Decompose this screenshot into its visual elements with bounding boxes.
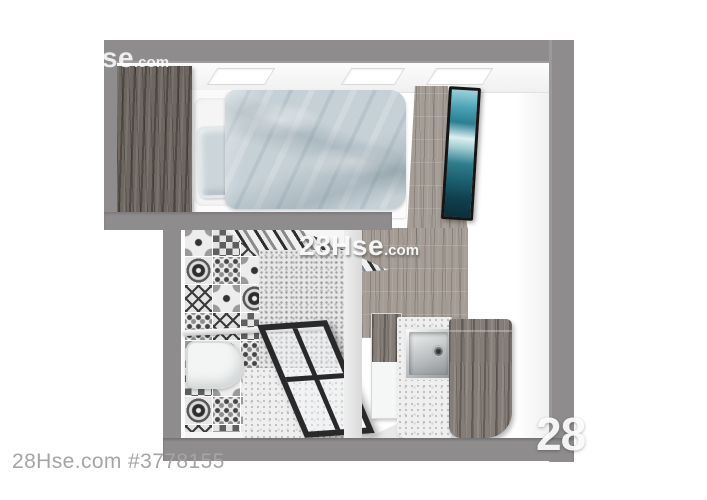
watermark-bottom-right: 28 xyxy=(536,411,585,457)
ceiling-recessed-panel xyxy=(207,68,276,85)
wall-right xyxy=(549,40,574,462)
wall-top xyxy=(104,40,574,63)
ceiling-recessed-panel xyxy=(341,68,406,85)
wall-bed-bath-divider xyxy=(104,212,392,230)
tile xyxy=(213,425,240,432)
tile xyxy=(185,229,212,256)
right-wall-shading xyxy=(516,63,549,438)
wall-bathroom-left xyxy=(163,230,181,438)
tile xyxy=(185,285,212,312)
watermark-top-left: 28Hse.com xyxy=(49,44,169,72)
tile xyxy=(213,285,240,312)
tile xyxy=(185,313,212,340)
sink-drain xyxy=(432,345,445,358)
tile xyxy=(185,425,212,432)
kitchen-wood-cabinet xyxy=(449,319,512,438)
listing-caption: 28Hse.com #3778155 xyxy=(12,450,225,474)
tile xyxy=(213,257,240,284)
ceiling-recessed-panel xyxy=(426,68,494,85)
bed-duvet xyxy=(225,90,406,209)
wardrobe-cabinet xyxy=(112,66,192,213)
watermark-center: 28Hse.com xyxy=(299,232,419,260)
watermark-brand: 28Hse xyxy=(49,42,134,73)
tile xyxy=(185,397,212,424)
floorplan-page: { "caption": { "text": "28Hse.com #37781… xyxy=(0,0,707,500)
tile xyxy=(185,257,212,284)
tile xyxy=(213,313,240,340)
tile xyxy=(213,397,240,424)
watermark-suffix: .com xyxy=(384,242,419,259)
watermark-brand: 28Hse xyxy=(299,230,384,261)
bathtub xyxy=(186,341,244,389)
kitchen-sink xyxy=(404,327,453,380)
watermark-suffix: .com xyxy=(134,54,169,71)
